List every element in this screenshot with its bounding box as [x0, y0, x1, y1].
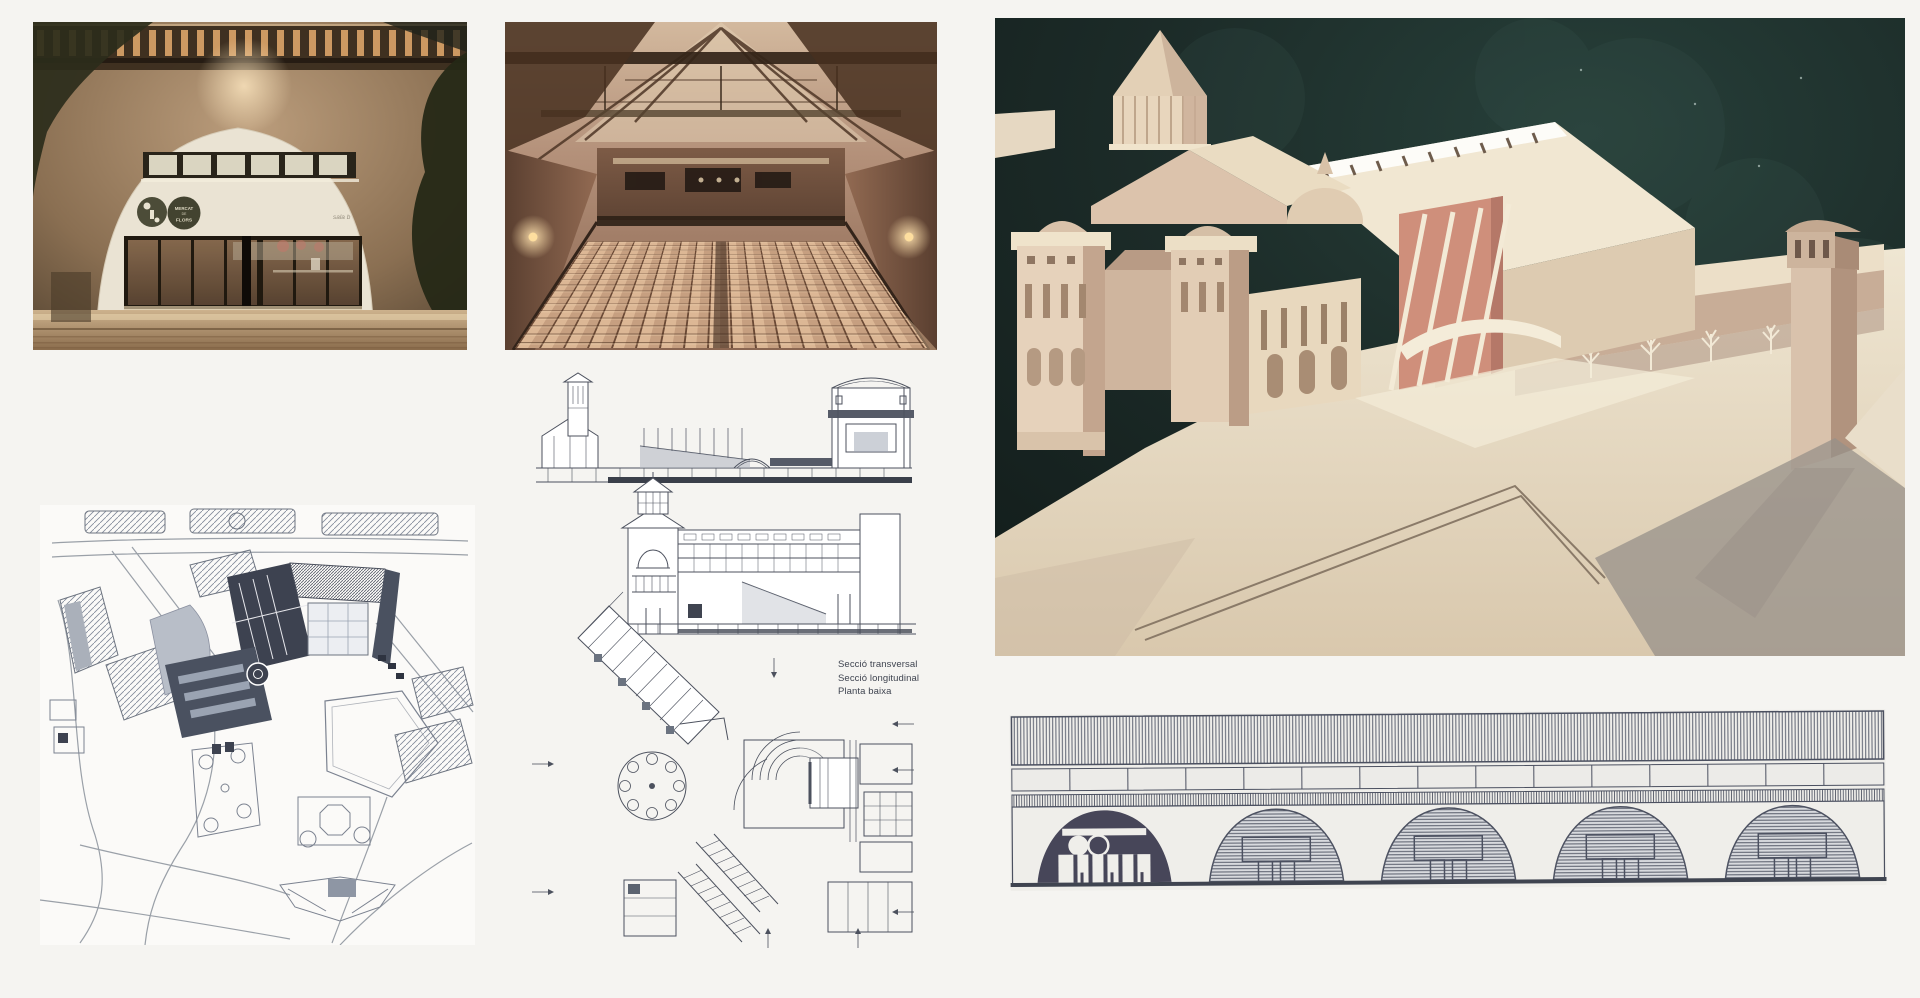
ground-plan-drawing [532, 592, 914, 948]
roof-band [1011, 711, 1883, 765]
drawing-caption-list: Secció transversal Secció longitudinal P… [838, 658, 933, 699]
logo-text-line2: DE [182, 212, 187, 216]
elevation-art [1009, 709, 1886, 891]
front-tower-left [1017, 246, 1083, 450]
caption-planta-baixa: Planta baixa [838, 685, 933, 699]
logo-text-line3: FLORS [176, 218, 193, 224]
corner-turret [1785, 220, 1861, 470]
sala-label: sala b [333, 214, 351, 221]
section-transversal-drawing [536, 373, 914, 483]
entrance-photo: MERCAT DE FLORS sala b [33, 22, 467, 350]
site-plan-drawing [40, 505, 475, 945]
stairs [678, 834, 778, 942]
caption-section-transversal: Secció transversal [838, 658, 933, 672]
elevation-drawing [1009, 709, 1886, 891]
model-photo-art [995, 18, 1905, 656]
section-longitudinal-drawing [622, 472, 916, 634]
model-photo [995, 18, 1905, 656]
caption-section-longitudinal: Secció longitudinal [838, 672, 933, 686]
logo-text-line1: MERCAT [175, 206, 194, 211]
site-plan-art [40, 505, 475, 945]
facade-spotlight [196, 38, 292, 134]
portfolio-page: MERCAT DE FLORS sala b [0, 0, 1920, 998]
auditorium-photo [505, 22, 937, 350]
entrance-photo-art: MERCAT DE FLORS sala b [33, 22, 467, 350]
front-tower-right [1171, 250, 1229, 422]
sections-plan-drawing: Secció transversal Secció longitudinal P… [528, 372, 918, 950]
seating-rows [515, 242, 927, 348]
door-center-post [242, 236, 251, 309]
